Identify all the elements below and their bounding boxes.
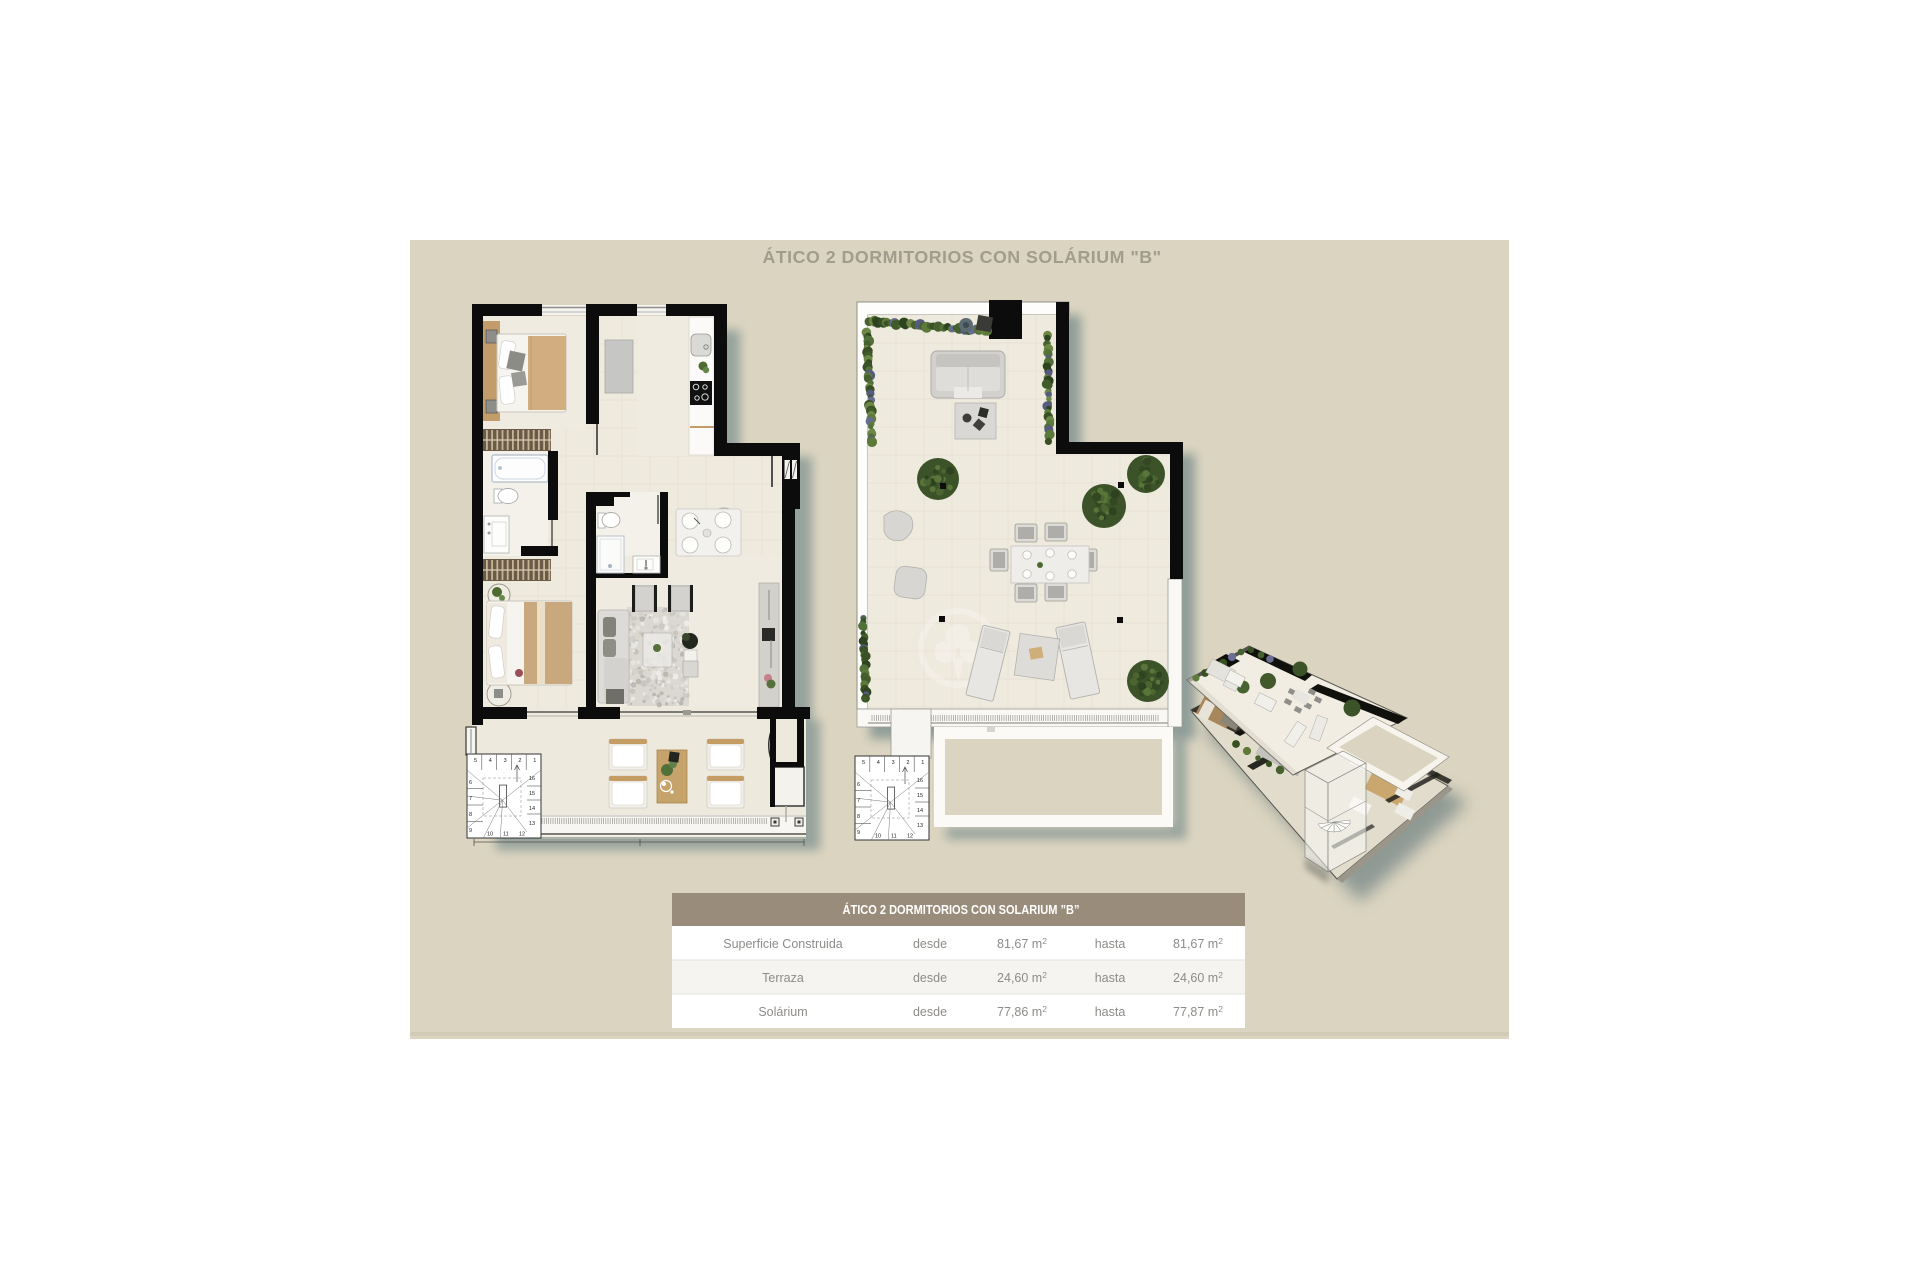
svg-text:Terraza: Terraza [762, 971, 804, 985]
svg-text:4: 4 [877, 760, 880, 766]
svg-text:desde: desde [913, 937, 947, 951]
svg-text:9: 9 [469, 828, 472, 834]
svg-text:hasta: hasta [1095, 1005, 1126, 1019]
svg-text:4: 4 [489, 758, 492, 764]
svg-text:11: 11 [503, 832, 509, 838]
svg-text:24,60 m2: 24,60 m2 [997, 970, 1047, 985]
svg-text:1: 1 [533, 758, 536, 764]
svg-text:81,67 m2: 81,67 m2 [1173, 936, 1223, 951]
svg-text:ÁTICO 2 DORMITORIOS CON SOLÁRI: ÁTICO 2 DORMITORIOS CON SOLÁRIUM "B" [762, 246, 1161, 267]
svg-text:81,67 m2: 81,67 m2 [997, 936, 1047, 951]
svg-text:11: 11 [891, 834, 897, 840]
svg-text:5: 5 [474, 758, 477, 764]
svg-text:14: 14 [917, 808, 923, 814]
svg-text:Superficie Construida: Superficie Construida [723, 937, 843, 951]
svg-text:12: 12 [519, 832, 525, 838]
svg-text:6: 6 [857, 782, 860, 788]
svg-text:hasta: hasta [1095, 937, 1126, 951]
svg-text:8: 8 [857, 814, 860, 820]
svg-text:9: 9 [857, 830, 860, 836]
svg-text:16: 16 [529, 776, 535, 782]
svg-text:8: 8 [469, 812, 472, 818]
svg-text:24,60 m2: 24,60 m2 [1173, 970, 1223, 985]
svg-text:1: 1 [921, 760, 924, 766]
svg-text:6: 6 [469, 780, 472, 786]
svg-text:2: 2 [518, 758, 521, 764]
svg-text:77,86 m2: 77,86 m2 [997, 1004, 1047, 1019]
svg-text:2: 2 [906, 760, 909, 766]
svg-text:15: 15 [529, 791, 535, 797]
svg-text:13: 13 [917, 823, 923, 829]
svg-text:5: 5 [862, 760, 865, 766]
svg-text:Solárium: Solárium [758, 1005, 807, 1019]
svg-text:14: 14 [529, 806, 535, 812]
svg-text:13: 13 [529, 821, 535, 827]
svg-text:16: 16 [917, 778, 923, 784]
svg-text:3: 3 [892, 760, 895, 766]
svg-text:77,87 m2: 77,87 m2 [1173, 1004, 1223, 1019]
svg-text:desde: desde [913, 971, 947, 985]
svg-text:desde: desde [913, 1005, 947, 1019]
svg-text:15: 15 [917, 793, 923, 799]
svg-text:10: 10 [875, 834, 881, 840]
svg-text:7: 7 [469, 796, 472, 802]
svg-text:3: 3 [504, 758, 507, 764]
svg-text:10: 10 [487, 832, 493, 838]
svg-text:12: 12 [907, 834, 913, 840]
svg-text:hasta: hasta [1095, 971, 1126, 985]
svg-text:ÁTICO 2 DORMITORIOS CON SOLARI: ÁTICO 2 DORMITORIOS CON SOLARIUM ”B” [843, 902, 1080, 917]
svg-text:7: 7 [857, 798, 860, 804]
